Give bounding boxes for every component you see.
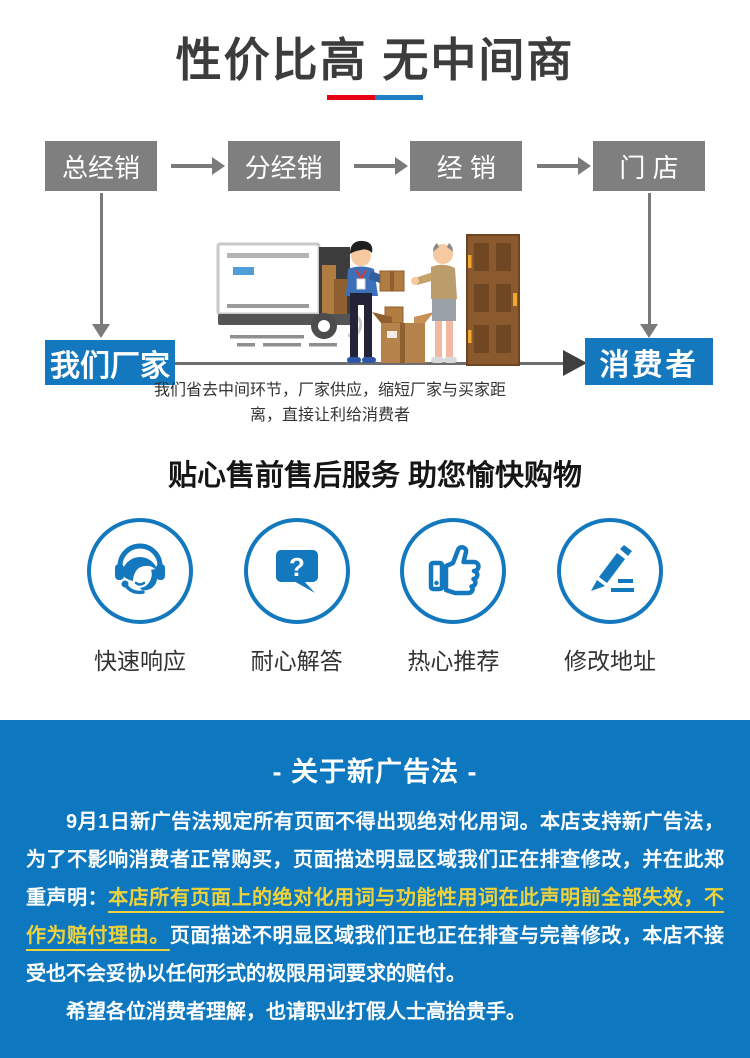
ad-law-notice-section: - 关于新广告法 - 9月1日新广告法规定所有页面不得出现绝对化用词。本店支持新… [0,720,750,1058]
service-item-fast-response: 快速响应 [82,518,198,676]
service-item-recommend: 热心推荐 [395,518,511,676]
pencil-icon [557,518,663,624]
flow-caption: 我们省去中间环节，厂家供应，缩短厂家与买家距 离，直接让利给消费者 [135,378,525,428]
headset-agent-icon [87,518,193,624]
truck-icon [218,244,361,347]
page-title: 性价比高 无中间商 [0,24,750,90]
right-arrow-icon [537,164,579,168]
right-arrow-icon [354,164,396,168]
flow-caption-line2: 离，直接让利给消费者 [135,403,525,428]
flow-box-store: 门 店 [593,141,705,191]
right-arrow-icon [171,164,213,168]
services-title: 贴心售前售后服务 助您愉快购物 [0,452,750,494]
flow-box-dealer: 经 销 [410,141,522,191]
flow-box-sub-distributor: 分经销 [228,141,340,191]
notice-title: - 关于新广告法 - [0,720,750,789]
notice-paragraph-1: 9月1日新广告法规定所有页面不得出现绝对化用词。本店支持新广告法，为了不影响消费… [26,803,724,993]
flow-caption-line1: 我们省去中间环节，厂家供应，缩短厂家与买家距 [135,378,525,403]
factory-to-consumer-arrowhead-icon [563,350,587,376]
down-arrow-icon [648,193,651,325]
door-graphic [467,235,519,365]
promo-page: 性价比高 无中间商 总经销 分经销 经 销 门 店 [0,0,750,1058]
question-bubble-icon: ? [244,518,350,624]
thumbs-up-icon [400,518,506,624]
title-underline [327,95,423,100]
notice-body: 9月1日新广告法规定所有页面不得出现绝对化用词。本店支持新广告法，为了不影响消费… [0,803,750,1031]
down-arrow-icon [100,193,103,325]
services-row: 快速响应 ? 耐心解答 热心推荐 [0,518,750,676]
underline-red-segment [327,95,375,100]
underline-blue-segment [375,95,423,100]
service-label: 耐心解答 [251,642,343,676]
consumer-box: 消费者 [585,338,713,385]
parcel-boxes-icon [372,307,434,363]
service-item-patient-answer: ? 耐心解答 [239,518,355,676]
flow-box-general-distributor: 总经销 [45,141,157,191]
distribution-flow-diagram: 总经销 分经销 经 销 门 店 [0,141,750,446]
notice-paragraph-2: 希望各位消费者理解，也请职业打假人士高抬贵手。 [26,993,724,1031]
delivery-illustration [185,227,565,367]
service-label: 热心推荐 [407,642,499,676]
question-mark-glyph: ? [289,552,305,582]
distribution-chain-row: 总经销 分经销 经 销 门 店 [0,141,750,191]
service-item-edit-address: 修改地址 [552,518,668,676]
service-label: 快速响应 [94,642,186,676]
service-label: 修改地址 [564,642,656,676]
